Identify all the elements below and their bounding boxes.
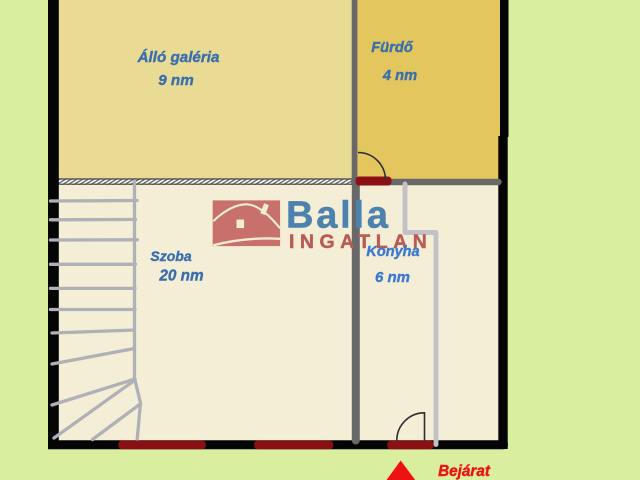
svg-text:4 nm: 4 nm	[382, 68, 417, 84]
svg-text:Szoba: Szoba	[150, 248, 191, 264]
svg-text:9 nm: 9 nm	[158, 72, 193, 89]
svg-text:20 nm: 20 nm	[158, 268, 203, 285]
svg-text:Bejárat: Bejárat	[438, 463, 491, 480]
svg-text:Fürdő: Fürdő	[371, 40, 414, 56]
svg-text:6 nm: 6 nm	[375, 269, 410, 286]
svg-text:Álló galéria: Álló galéria	[137, 49, 220, 66]
svg-text:Konyha: Konyha	[366, 244, 419, 260]
